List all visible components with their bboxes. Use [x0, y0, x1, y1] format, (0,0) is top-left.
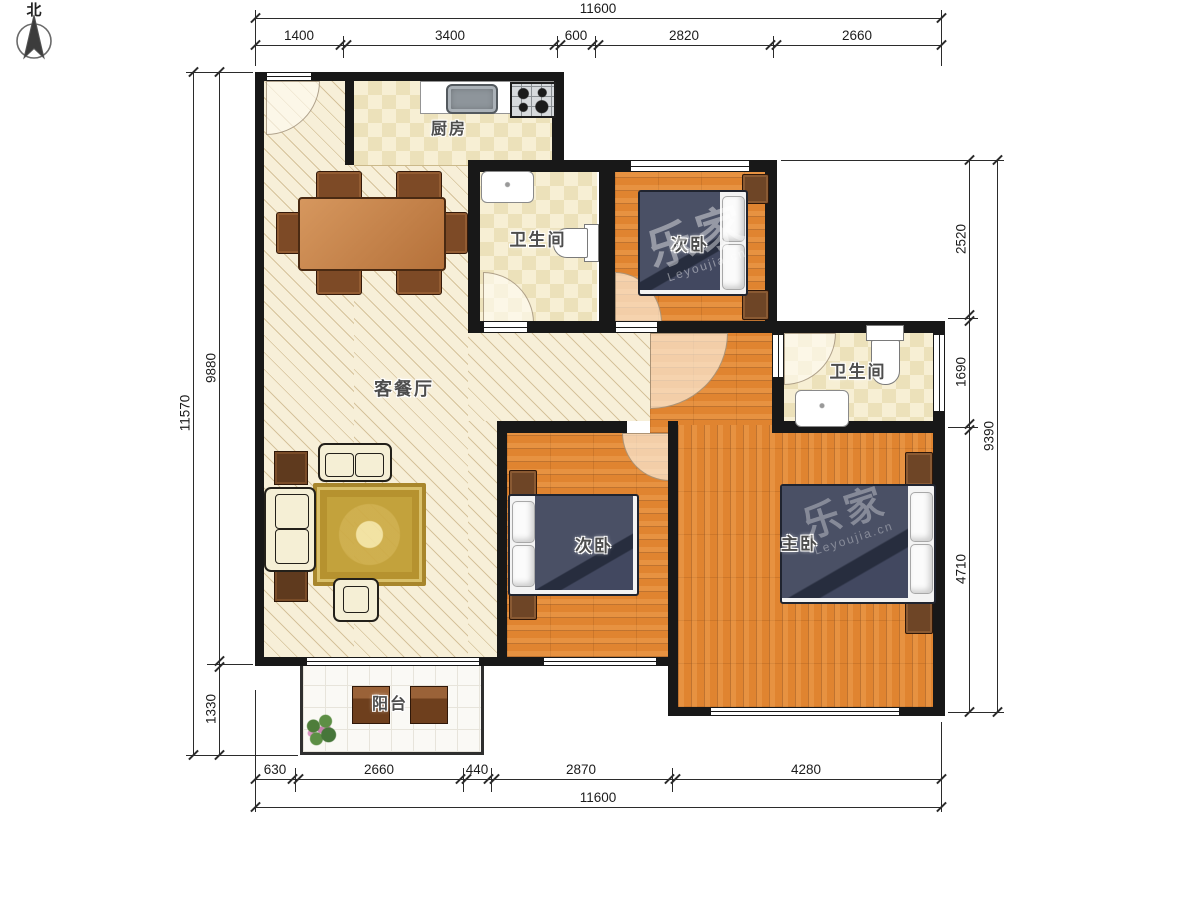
north-indicator: 北 — [8, 3, 60, 67]
dim-top-seg-3: 2820 — [669, 28, 699, 43]
dim-right-seg-2: 4710 — [954, 554, 969, 584]
dim-left-total: 11570 — [178, 395, 193, 432]
dim-line — [255, 779, 941, 780]
dim-bottom-seg-3: 2870 — [566, 762, 596, 777]
wall — [497, 421, 627, 433]
wall — [497, 421, 507, 666]
room-label-bathroom1: 卫生间 — [510, 226, 567, 251]
dim-top-seg-1: 3400 — [435, 28, 465, 43]
dim-top-seg-0: 1400 — [284, 28, 314, 43]
wall — [255, 72, 264, 666]
stove — [510, 82, 556, 118]
dim-guide — [186, 755, 298, 756]
wall — [668, 421, 678, 666]
wall — [599, 160, 615, 333]
entry-door-panel — [266, 72, 312, 81]
balcony-slider — [306, 657, 480, 666]
dim-bottom-total: 11600 — [580, 790, 617, 805]
bed-bedroom2 — [508, 494, 639, 596]
dim-line — [255, 807, 941, 808]
armchair — [333, 578, 379, 622]
toilet-tank — [866, 325, 904, 341]
bathroom-sink — [481, 171, 534, 203]
dim-line — [193, 72, 194, 755]
armchair-cushion — [343, 586, 369, 613]
nightstand — [509, 592, 537, 620]
dim-right-total: 9390 — [982, 421, 997, 451]
dim-top-seg-2: 600 — [565, 28, 588, 43]
room-label-master: 主卧 — [781, 530, 819, 555]
dim-right-seg-1: 1690 — [954, 357, 969, 387]
dining-table — [298, 197, 446, 271]
door-opening-bathroom2 — [772, 334, 784, 378]
sofa-cushion — [275, 494, 309, 529]
nightstand — [905, 452, 933, 486]
dim-top-total: 11600 — [580, 1, 617, 16]
pillow — [722, 196, 745, 242]
north-arrow-icon — [10, 12, 58, 62]
pillow — [722, 244, 745, 290]
dim-line — [255, 18, 941, 19]
sofa-three-seat — [264, 487, 316, 572]
room-label-kitchen: 厨房 — [431, 115, 467, 139]
dim-top-seg-4: 2660 — [842, 28, 872, 43]
dim-right-seg-0: 2520 — [954, 224, 969, 254]
sofa-cushion — [275, 529, 309, 564]
dim-line — [969, 160, 970, 712]
room-label-balcony: 阳台 — [372, 690, 408, 714]
dim-guide — [941, 722, 942, 812]
area-rug — [313, 483, 426, 586]
pillow — [512, 545, 535, 587]
pillow — [910, 492, 933, 542]
balcony-planter — [410, 686, 448, 724]
dim-guide — [255, 690, 256, 812]
side-table — [274, 568, 308, 602]
dim-bottom-seg-1: 2660 — [364, 762, 394, 777]
potted-plant — [302, 710, 340, 750]
room-label-bedroom2: 次卧 — [575, 532, 613, 557]
wall — [345, 72, 354, 165]
sofa-cushion — [325, 453, 354, 477]
bathroom-sink — [795, 390, 849, 427]
floor-plan: 厨房 卫生间 次卧 卫生间 客餐厅 次卧 主卧 阳台 乐家 Leyoujia.c… — [0, 0, 1200, 900]
dim-bottom-seg-4: 4280 — [791, 762, 821, 777]
pillow — [512, 501, 535, 543]
dim-left-seg-1: 1330 — [204, 694, 219, 724]
door-opening-bathroom1 — [483, 321, 528, 333]
dim-left-seg-0: 9880 — [204, 353, 219, 383]
dim-line — [219, 72, 220, 755]
window-bedroom1 — [630, 160, 750, 172]
window-bedroom2 — [543, 657, 657, 666]
sofa-two-seat — [318, 443, 392, 482]
window-bathroom2 — [933, 334, 945, 412]
window-master — [710, 707, 900, 716]
room-label-bathroom2: 卫生间 — [830, 358, 887, 383]
door-opening-bedroom1 — [615, 321, 658, 333]
wall — [468, 160, 480, 333]
dim-bottom-seg-0: 630 — [264, 762, 287, 777]
floor-hallway — [468, 333, 650, 421]
kitchen-sink — [446, 84, 498, 114]
dim-line — [997, 160, 998, 712]
room-label-bedroom1: 次卧 — [671, 231, 709, 256]
sofa-cushion — [355, 453, 384, 477]
side-table — [274, 451, 308, 485]
pillow — [910, 544, 933, 594]
room-label-living: 客餐厅 — [374, 375, 434, 401]
